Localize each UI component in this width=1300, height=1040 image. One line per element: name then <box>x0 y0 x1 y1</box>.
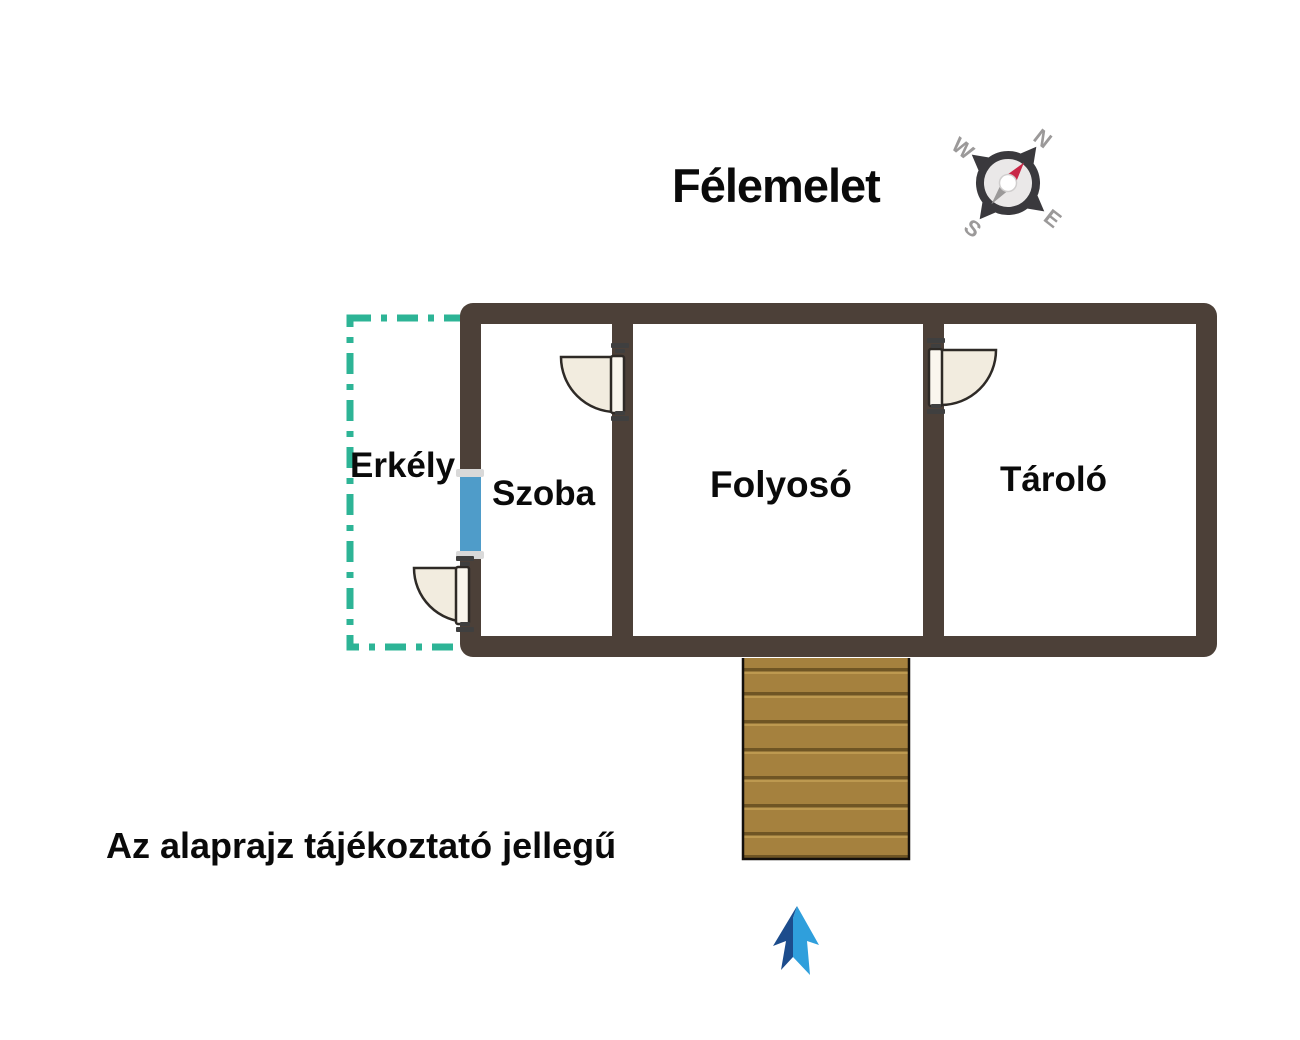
disclaimer-note: Az alaprajz tájékoztató jellegű <box>106 828 616 864</box>
door-balcony-icon <box>414 556 474 632</box>
room-label-szoba: Szoba <box>492 476 595 511</box>
compass-icon: N E S W <box>912 87 1101 278</box>
compass-e: E <box>1039 204 1066 233</box>
floor-title: Félemelet <box>672 162 880 209</box>
room-label-erkely: Erkély <box>350 448 455 483</box>
floorplan-page: OC OTTHON CENTRUM <box>0 0 1300 1040</box>
compass-s: S <box>959 214 986 243</box>
floorplan-drawing: OC OTTHON CENTRUM <box>0 0 1300 1040</box>
direction-arrow-icon <box>773 906 819 975</box>
window-bracket-top <box>456 469 484 477</box>
window-marker <box>456 469 484 559</box>
window-glass <box>460 477 481 552</box>
stairs <box>742 658 910 860</box>
room-label-tarolo: Tároló <box>1000 462 1107 497</box>
room-label-folyoso: Folyosó <box>710 466 852 503</box>
